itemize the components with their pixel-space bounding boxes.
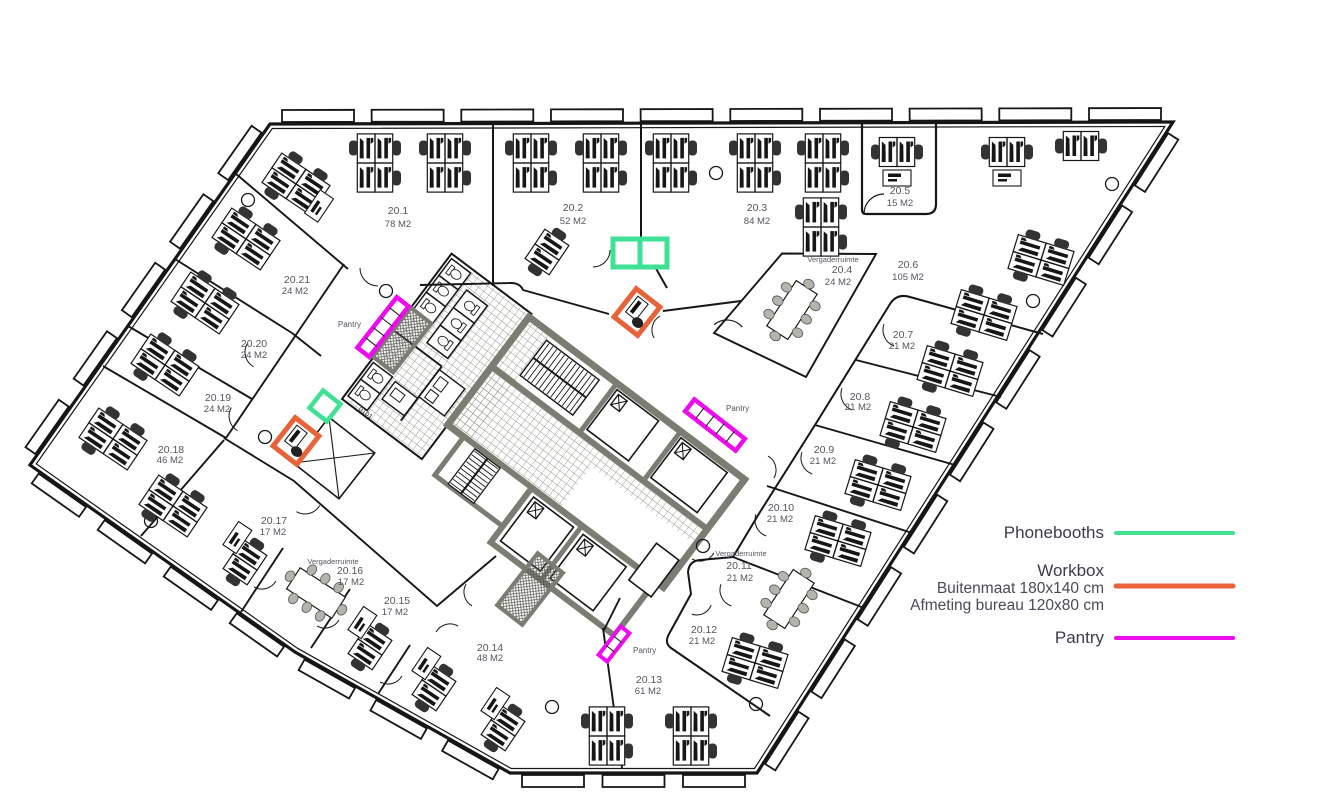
svg-text:Pantry: Pantry (726, 404, 749, 413)
svg-text:Pantry: Pantry (338, 320, 361, 329)
svg-text:Phonebooths: Phonebooths (1004, 523, 1104, 542)
svg-text:20.12: 20.12 (691, 624, 717, 636)
svg-text:20.17: 20.17 (261, 515, 287, 527)
svg-text:21 M2: 21 M2 (810, 456, 836, 467)
svg-text:17 M2: 17 M2 (382, 607, 408, 618)
svg-text:21 M2: 21 M2 (689, 636, 715, 647)
svg-text:20.20: 20.20 (241, 338, 267, 350)
svg-text:21 M2: 21 M2 (845, 402, 871, 413)
svg-text:20.6: 20.6 (898, 259, 919, 271)
svg-text:Vergaderruimte: Vergaderruimte (715, 549, 766, 558)
svg-text:20.19: 20.19 (205, 392, 231, 404)
svg-text:20.11: 20.11 (726, 560, 752, 572)
svg-text:Buitenmaat 180x140 cm: Buitenmaat 180x140 cm (937, 580, 1104, 597)
svg-text:17 M2: 17 M2 (338, 577, 364, 588)
svg-text:20.21: 20.21 (284, 274, 310, 286)
svg-text:Pantry: Pantry (633, 646, 656, 655)
svg-text:Vergaderruimte: Vergaderruimte (807, 255, 858, 264)
svg-text:24 M2: 24 M2 (204, 404, 230, 415)
svg-text:20.2: 20.2 (563, 202, 584, 214)
svg-text:17 M2: 17 M2 (260, 527, 286, 538)
svg-text:Afmeting bureau 120x80 cm: Afmeting bureau 120x80 cm (910, 597, 1104, 614)
svg-text:21 M2: 21 M2 (767, 514, 793, 525)
svg-text:20.13: 20.13 (636, 674, 662, 686)
svg-text:Workbox: Workbox (1037, 561, 1104, 580)
svg-text:20.7: 20.7 (893, 329, 914, 341)
svg-text:20.3: 20.3 (747, 202, 768, 214)
svg-text:20.5: 20.5 (890, 185, 911, 197)
svg-text:20.16: 20.16 (337, 565, 363, 577)
svg-text:48 M2: 48 M2 (477, 653, 503, 664)
svg-text:52 M2: 52 M2 (560, 216, 586, 227)
svg-text:21 M2: 21 M2 (889, 341, 915, 352)
svg-text:21 M2: 21 M2 (727, 573, 753, 584)
svg-text:61 M2: 61 M2 (635, 686, 661, 697)
svg-text:24 M2: 24 M2 (825, 277, 851, 288)
svg-text:24 M2: 24 M2 (241, 350, 267, 361)
svg-text:46 M2: 46 M2 (157, 455, 183, 466)
svg-text:20.10: 20.10 (768, 502, 794, 514)
svg-text:24 M2: 24 M2 (282, 286, 308, 297)
svg-text:20.1: 20.1 (388, 205, 409, 217)
svg-text:84 M2: 84 M2 (744, 216, 770, 227)
svg-text:105 M2: 105 M2 (892, 272, 924, 283)
svg-text:15 M2: 15 M2 (887, 198, 913, 209)
svg-text:78 M2: 78 M2 (385, 219, 411, 230)
svg-text:20.9: 20.9 (814, 444, 835, 456)
svg-text:Pantry: Pantry (1055, 628, 1105, 647)
svg-text:20.15: 20.15 (384, 595, 410, 607)
svg-text:20.4: 20.4 (832, 264, 853, 276)
